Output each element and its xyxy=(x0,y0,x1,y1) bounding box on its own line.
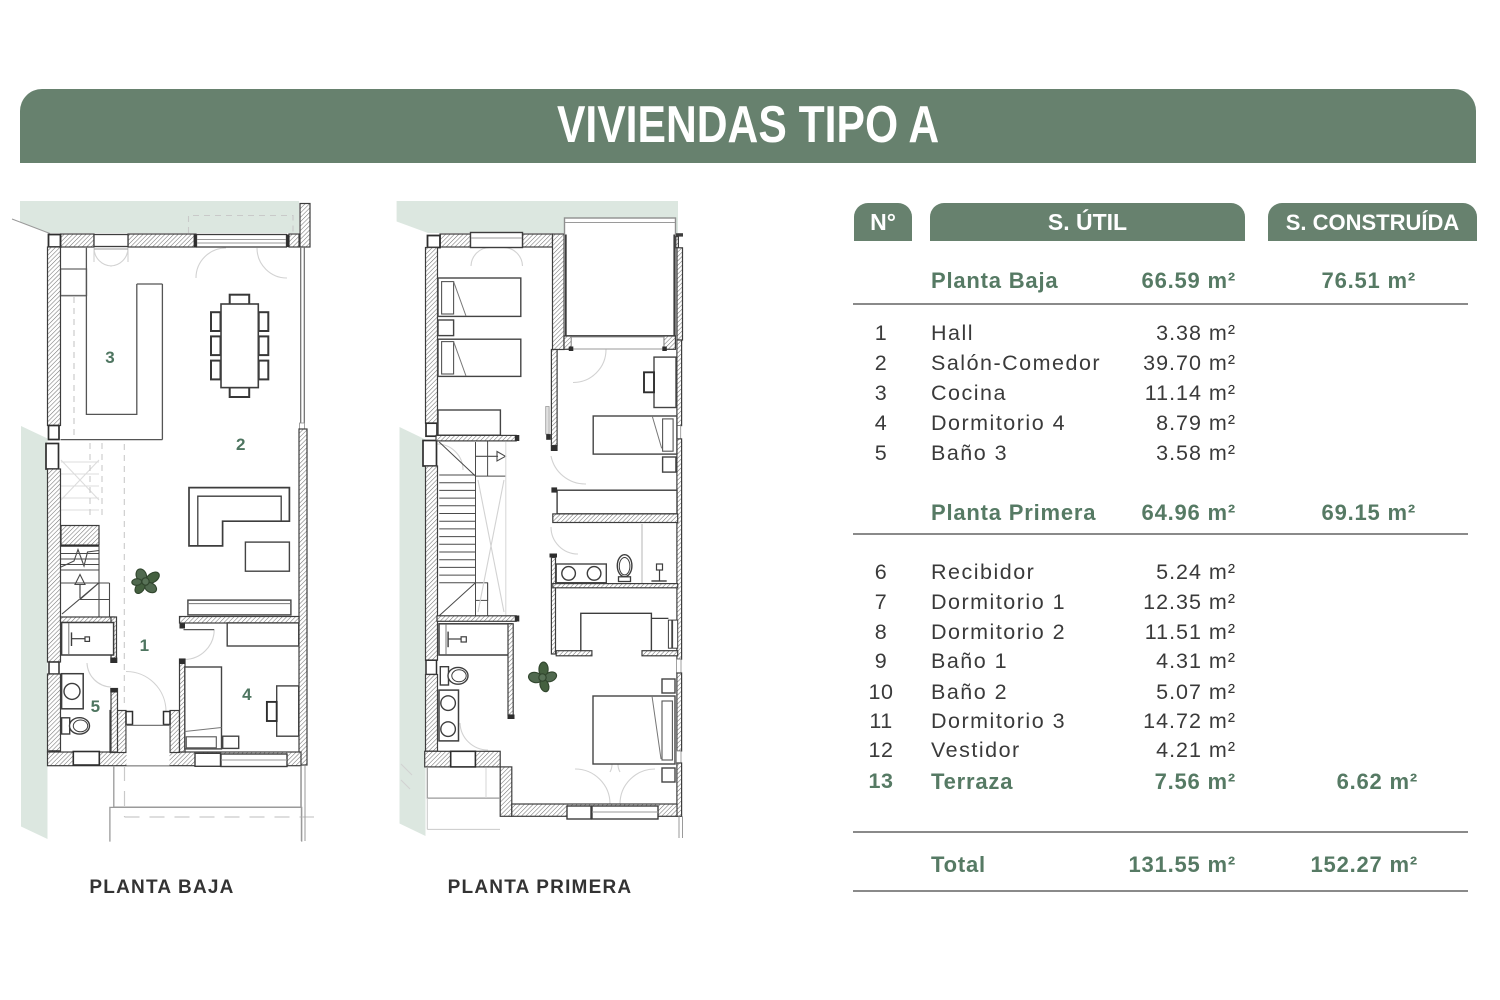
svg-text:4: 4 xyxy=(242,685,252,704)
svg-text:3: 3 xyxy=(105,348,114,367)
svg-text:5: 5 xyxy=(91,697,100,716)
svg-text:1: 1 xyxy=(140,636,149,655)
svg-text:2: 2 xyxy=(236,435,245,454)
